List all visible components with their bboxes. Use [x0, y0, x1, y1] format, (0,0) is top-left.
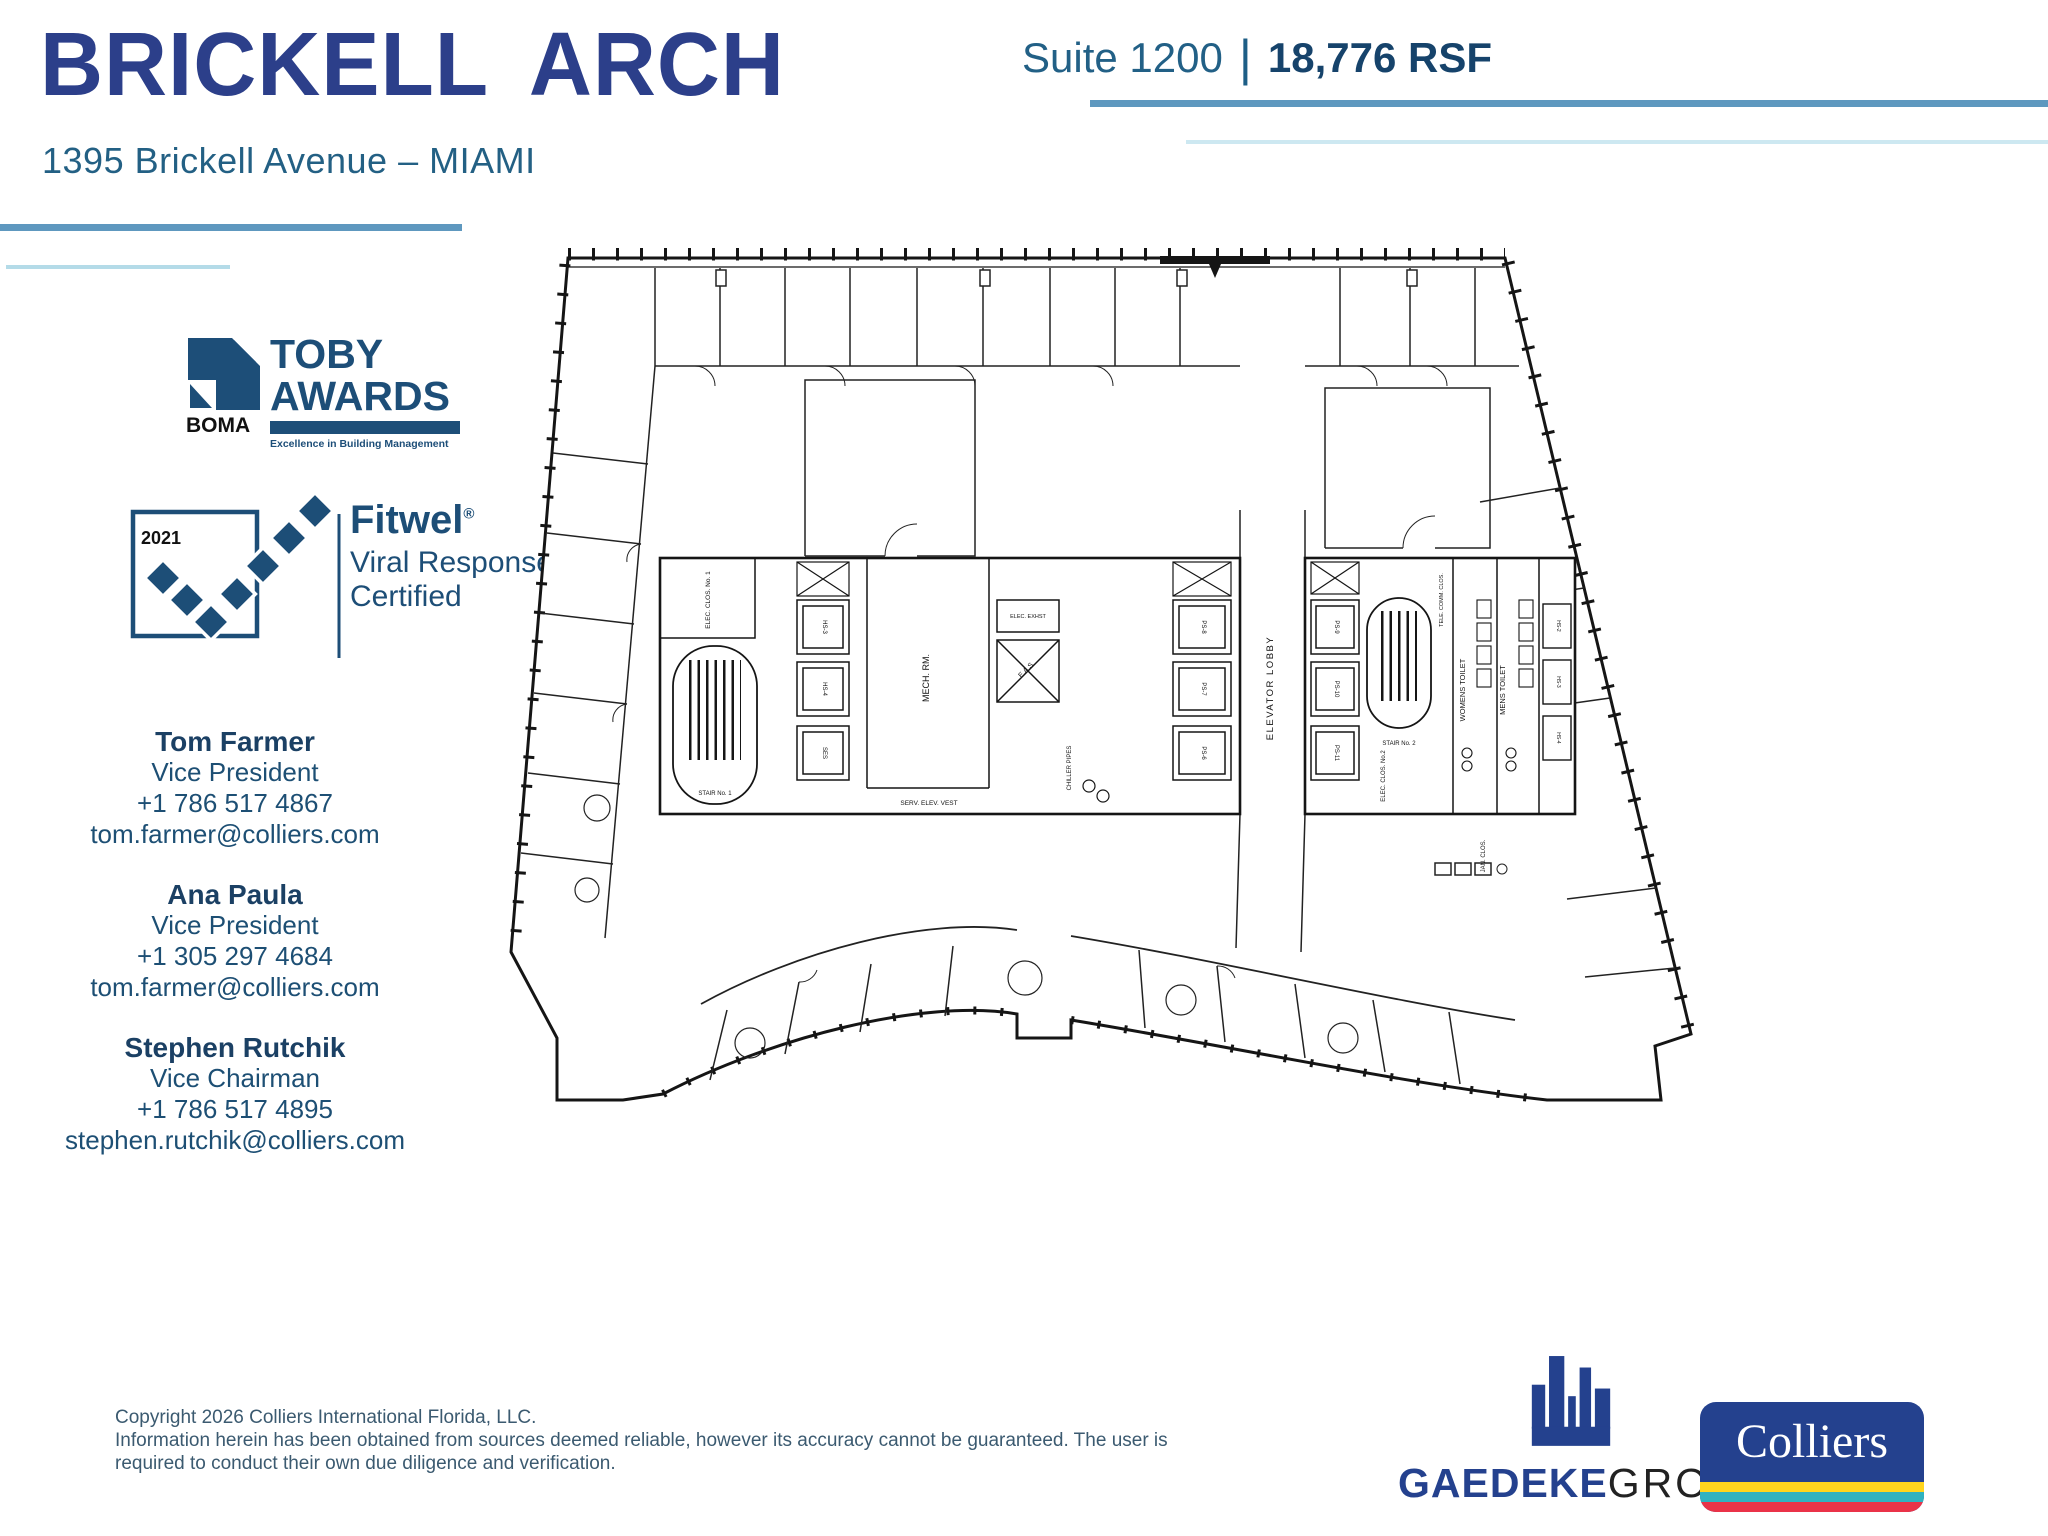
elec-exhst-label: ELEC. EXHST — [1010, 614, 1046, 620]
copyright-text: Copyright 2026 Colliers International Fl… — [115, 1406, 1168, 1475]
cab-label: HS-3 — [821, 620, 827, 634]
core-left — [660, 558, 1240, 814]
colliers-stripe-teal — [1700, 1492, 1924, 1502]
contact-phone: +1 305 297 4684 — [15, 941, 455, 972]
elec-clos-2-label: ELEC. CLOS. No.2 — [1381, 750, 1387, 802]
colliers-stripe-red — [1700, 1502, 1924, 1512]
property-address: 1395 Brickell Avenue – MIAMI — [42, 140, 536, 182]
cab-label: PS-8 — [1200, 620, 1206, 634]
elec-clos-1-label: ELEC. CLOS. No. 1 — [705, 571, 712, 629]
contact-email: stephen.rutchik@colliers.com — [15, 1125, 455, 1156]
contact-title: Vice President — [15, 910, 455, 941]
colliers-stripe-yellow — [1700, 1482, 1924, 1492]
contact-email: tom.farmer@colliers.com — [15, 819, 455, 850]
contact-name: Tom Farmer — [15, 726, 455, 757]
fitwel-line2: Certified — [350, 580, 462, 614]
cab-label: PS-10 — [1333, 681, 1339, 698]
serv-elev-vest-label: SERV. ELEV. VEST — [900, 800, 957, 807]
contact-name: Ana Paula — [15, 879, 455, 910]
contact-card: Ana Paula Vice President +1 305 297 4684… — [15, 879, 455, 1003]
cab-label: HS-2 — [1555, 620, 1561, 632]
flyer-page: BRICKELL ARCH 1395 Brickell Avenue – MIA… — [0, 0, 2048, 1536]
toby-awards-icon: BOMA — [186, 336, 268, 438]
stair-2-label: STAIR No. 2 — [1382, 741, 1416, 747]
rule-right-thin — [1186, 140, 2048, 144]
copyright-line: required to conduct their own due dilige… — [115, 1452, 1168, 1475]
awards-word: AWARDS — [270, 376, 450, 416]
suite-label: Suite 1200 — [1022, 34, 1223, 81]
gaedeke-building-icon — [1528, 1350, 1614, 1450]
toby-tagline: Excellence in Building Management — [270, 438, 449, 450]
toby-word: TOBY — [270, 334, 383, 374]
copyright-line: Copyright 2026 Colliers International Fl… — [115, 1406, 1168, 1429]
boma-label: BOMA — [186, 414, 250, 437]
chiller-pipes-label: CHILLER PIPES — [1067, 746, 1073, 791]
contact-card: Stephen Rutchik Vice Chairman +1 786 517… — [15, 1032, 455, 1156]
cab-label: HS-4 — [1555, 732, 1561, 744]
contact-name: Stephen Rutchik — [15, 1032, 455, 1063]
cab-label: HS-3 — [1555, 676, 1561, 688]
colliers-logo: Colliers — [1700, 1402, 1924, 1512]
contact-phone: +1 786 517 4895 — [15, 1094, 455, 1125]
mens-toilet-label: MENS TOILET — [1498, 665, 1507, 715]
rule-left-thin — [6, 265, 230, 269]
elevator-lobby-label: ELEVATOR LOBBY — [1265, 636, 1276, 740]
floor-plan: ELEC. CLOS. No. 1 MECH. RM. ELEC. EXHST … — [505, 248, 1700, 1110]
cab-label: HS-4 — [821, 682, 827, 696]
suite-rsf: 18,776 RSF — [1268, 34, 1492, 81]
cab-label: PS-11 — [1333, 745, 1339, 762]
registered-icon: ® — [463, 506, 474, 523]
tele-comm-clos-label: TELE. COMM. CLOS. — [1439, 573, 1445, 627]
gaedeke-bold: GAEDEKE — [1398, 1460, 1608, 1506]
contact-email: tom.farmer@colliers.com — [15, 972, 455, 1003]
jan-clos-label: JAN. CLOS. — [1481, 839, 1487, 872]
copyright-line: Information herein has been obtained fro… — [115, 1429, 1168, 1452]
fitwel-diamonds — [145, 493, 334, 641]
broker-contacts: Tom Farmer Vice President +1 786 517 486… — [15, 726, 455, 1185]
page-title: BRICKELL ARCH — [40, 14, 785, 117]
fitwel-check-icon: 2021 — [125, 492, 355, 672]
fitwel-brand: Fitwel® — [350, 498, 474, 543]
rule-right-thick — [1090, 100, 2048, 107]
cab-label: SES — [821, 747, 827, 759]
fitwel-year: 2021 — [141, 528, 181, 548]
suite-size-line: Suite 1200|18,776 RSF — [1022, 26, 1492, 84]
contact-title: Vice Chairman — [15, 1063, 455, 1094]
cab-label: PS-6 — [1200, 746, 1206, 760]
womens-toilet-label: WOMENS TOILET — [1458, 658, 1467, 721]
colliers-wordmark: Colliers — [1700, 1414, 1924, 1469]
contact-card: Tom Farmer Vice President +1 786 517 486… — [15, 726, 455, 850]
rule-left-thick — [0, 224, 462, 231]
stair-1-label: STAIR No. 1 — [698, 791, 732, 797]
contact-title: Vice President — [15, 757, 455, 788]
mech-rm-label: MECH. RM. — [921, 654, 931, 702]
contact-phone: +1 786 517 4867 — [15, 788, 455, 819]
toby-bar — [270, 421, 460, 434]
cab-label: PS-9 — [1333, 620, 1339, 634]
cab-label: PS-7 — [1200, 682, 1206, 696]
suite-separator: | — [1239, 30, 1252, 86]
